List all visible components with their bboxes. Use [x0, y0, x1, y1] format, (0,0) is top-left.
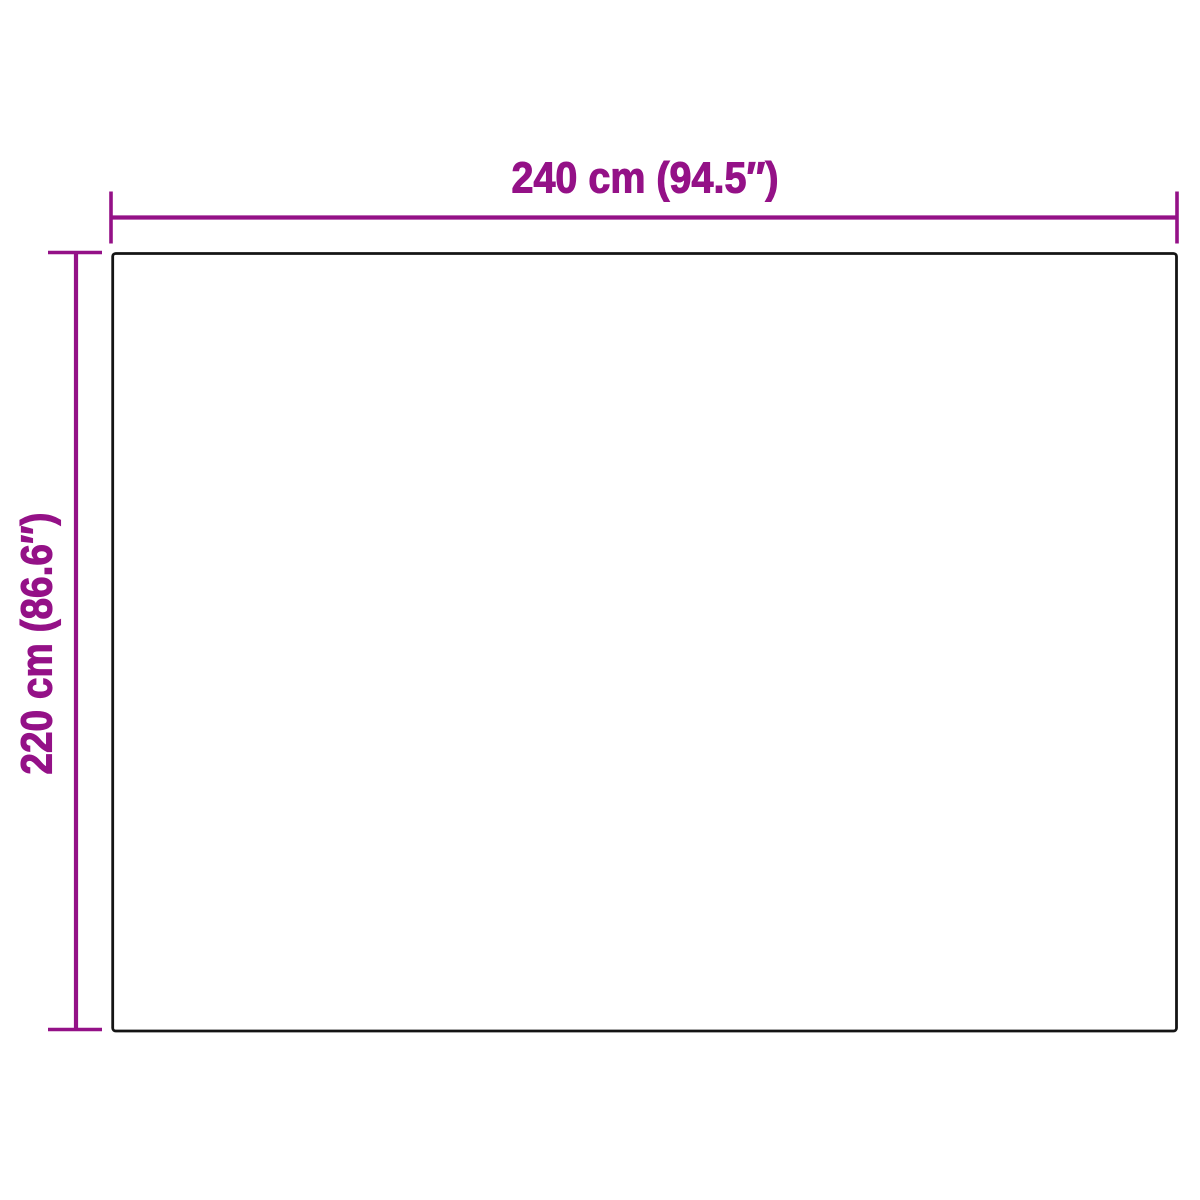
- svg-text:220 cm (86.6″): 220 cm (86.6″): [13, 513, 62, 775]
- svg-text:240 cm (94.5″): 240 cm (94.5″): [512, 154, 779, 203]
